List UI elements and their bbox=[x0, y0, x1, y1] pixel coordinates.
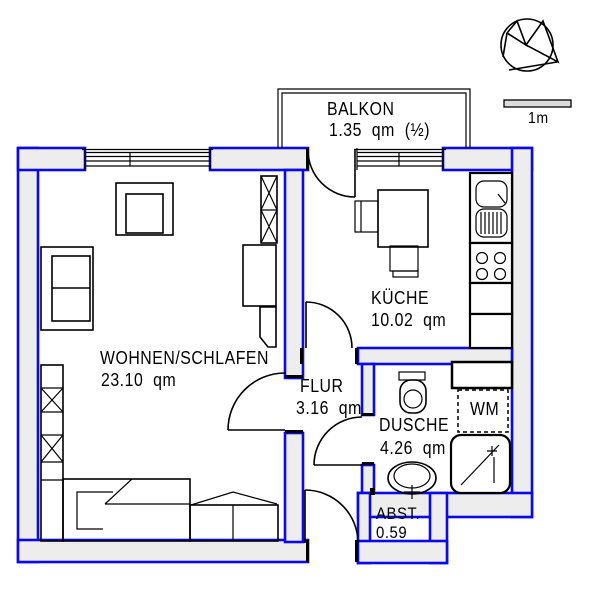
installation-shaft bbox=[452, 362, 512, 388]
shelf-column bbox=[41, 365, 63, 541]
bed bbox=[63, 479, 190, 541]
bath-door-stop bbox=[370, 488, 375, 495]
scale-label: 1m bbox=[528, 110, 549, 128]
jamb-living-door-bottom bbox=[285, 430, 303, 433]
balcony-door bbox=[308, 150, 355, 197]
balcony-area: 1.35 qm (½) bbox=[329, 121, 430, 141]
bath-door bbox=[314, 417, 362, 465]
wall-bottom-living bbox=[18, 540, 308, 562]
wall-top-left bbox=[18, 148, 85, 170]
living-room-area: 23.10 qm bbox=[101, 371, 176, 391]
living-room-label: WOHNEN/SCHLAFEN bbox=[100, 349, 269, 369]
jamb-kitchen-door-left bbox=[300, 348, 303, 364]
storage-label: ABST. bbox=[376, 505, 420, 524]
living-room-window bbox=[82, 148, 213, 170]
shower bbox=[451, 435, 510, 493]
shower-room-area: 4.26 qm bbox=[380, 439, 446, 459]
kitchen-label: KÜCHE bbox=[371, 289, 429, 309]
jamb-entry-right bbox=[355, 540, 358, 562]
kitchen-door bbox=[306, 302, 352, 348]
wall-bottom-storage bbox=[358, 541, 447, 563]
wall-top-middle bbox=[210, 148, 308, 170]
floor-plan: BALKON 1.35 qm (½) KÜCHE 10.02 qm WOHNEN… bbox=[0, 0, 600, 600]
balcony-label: BALKON bbox=[327, 100, 394, 120]
jamb-entry-left bbox=[306, 540, 309, 562]
sink-unit bbox=[470, 173, 512, 243]
wall-living-hall-upper bbox=[285, 170, 303, 378]
wall-bath-west-upper bbox=[362, 364, 374, 415]
jamb-kitchen-door-right bbox=[355, 348, 358, 364]
floor-plan-drawing bbox=[0, 0, 600, 600]
wall-right bbox=[512, 148, 532, 517]
wall-left bbox=[18, 148, 38, 562]
wall-living-hall-lower bbox=[285, 433, 303, 542]
corner-cabinet bbox=[260, 307, 276, 347]
kitchen-window bbox=[354, 148, 446, 170]
kitchen-area: 10.02 qm bbox=[371, 311, 446, 331]
bench bbox=[190, 492, 278, 541]
scale-bar bbox=[504, 100, 571, 107]
washing-machine-label: WM bbox=[470, 400, 499, 420]
kitchen-cabinet-1 bbox=[470, 283, 512, 314]
storage-area: 0.59 bbox=[376, 524, 407, 543]
wardrobe bbox=[243, 245, 276, 306]
kitchen-table bbox=[355, 190, 428, 277]
stove bbox=[470, 243, 512, 283]
sofa bbox=[41, 247, 93, 330]
toilet bbox=[399, 372, 426, 413]
tv-stand bbox=[116, 183, 173, 235]
living-room-door bbox=[228, 373, 285, 430]
entry-door bbox=[305, 490, 358, 543]
hallway-area: 3.16 qm bbox=[296, 399, 362, 419]
jamb-bath-door-bottom bbox=[362, 462, 374, 465]
shower-room-label: DUSCHE bbox=[379, 416, 449, 436]
jamb-bath-door-top bbox=[362, 413, 374, 416]
kitchen-cabinet-2 bbox=[470, 314, 512, 348]
crossed-cabinet bbox=[261, 176, 277, 243]
hallway-label: FLUR bbox=[300, 377, 343, 397]
north-arrow-icon bbox=[501, 19, 558, 71]
